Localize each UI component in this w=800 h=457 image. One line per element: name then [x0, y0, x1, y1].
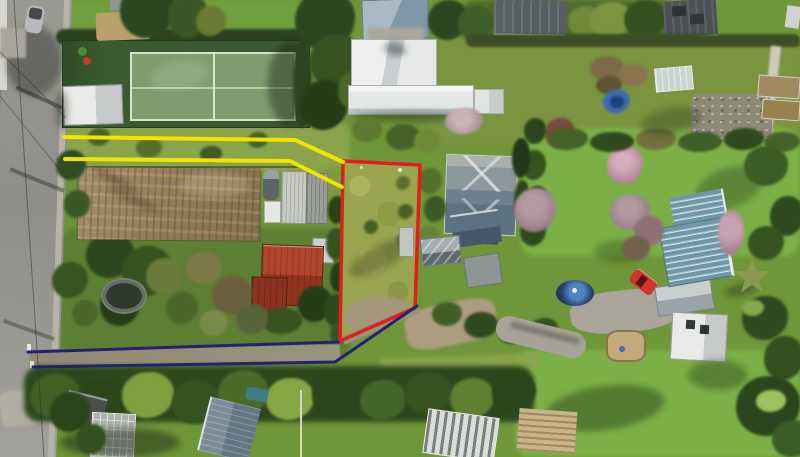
overlay-lines [0, 0, 800, 457]
navy-boundary-bottom [33, 306, 417, 367]
yellow-boundary-bottom [65, 159, 342, 187]
power-line [0, 96, 60, 170]
power-line [14, 0, 44, 457]
red-lot-boundary [340, 161, 420, 341]
aerial-photo [0, 0, 800, 457]
navy-boundary-top [28, 342, 338, 352]
